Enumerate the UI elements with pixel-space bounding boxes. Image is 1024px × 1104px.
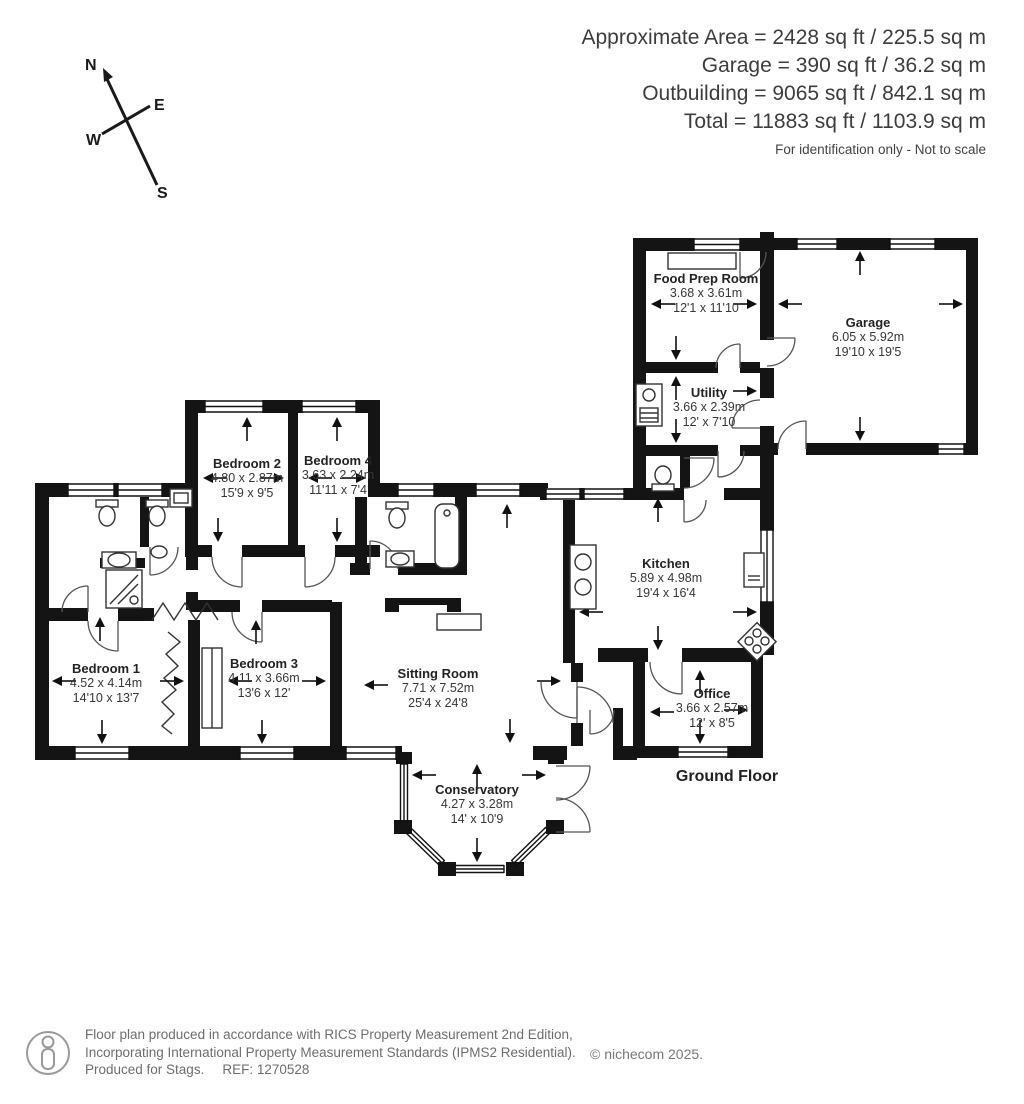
room-label-garage: Garage 6.05 x 5.92m 19'10 x 19'5 <box>832 315 904 360</box>
floor-plan-page: Approximate Area = 2428 sq ft / 225.5 sq… <box>0 0 1024 1104</box>
footer-line-2: Incorporating International Property Mea… <box>85 1044 576 1062</box>
footer-line-3: Produced for Stags.REF: 1270528 <box>85 1061 576 1079</box>
room-label-sitting-room: Sitting Room 7.71 x 7.52m 25'4 x 24'8 <box>398 666 479 711</box>
person-icon <box>26 1027 72 1077</box>
room-label-bedroom-4: Bedroom 4 3.63 x 2.24m 11'11 x 7'4 <box>302 453 374 498</box>
room-label-bedroom-2: Bedroom 2 4.80 x 2.87m 15'9 x 9'5 <box>211 456 283 501</box>
hearth <box>437 614 481 630</box>
kitchen-sink-icon <box>570 545 596 609</box>
footer-text: Floor plan produced in accordance with R… <box>85 1026 576 1079</box>
room-label-food-prep: Food Prep Room 3.68 x 3.61m 12'1 x 11'10 <box>654 271 759 316</box>
room-label-bedroom-3: Bedroom 3 4.11 x 3.66m 13'6 x 12' <box>228 656 299 701</box>
floor-label: Ground Floor <box>676 768 778 786</box>
room-label-utility: Utility 3.66 x 2.39m 12' x 7'10 <box>673 385 745 430</box>
corner-sink-icon <box>151 546 167 558</box>
toilet-icon <box>652 466 674 491</box>
washer-icon <box>636 384 662 426</box>
sink-icon <box>386 551 414 567</box>
wardrobe-icon <box>202 648 222 728</box>
footer-line-1: Floor plan produced in accordance with R… <box>85 1026 576 1044</box>
room-label-kitchen: Kitchen 5.89 x 4.98m 19'4 x 16'4 <box>630 556 702 601</box>
toilet-icon <box>386 502 408 528</box>
room-label-office: Office 3.66 x 2.57m 12' x 8'5 <box>676 686 748 731</box>
counter-icon <box>668 253 736 269</box>
footer: Floor plan produced in accordance with R… <box>26 1026 576 1079</box>
shower-icon <box>106 570 142 608</box>
room-label-bedroom-1: Bedroom 1 4.52 x 4.14m 14'10 x 13'7 <box>70 661 142 706</box>
room-label-conservatory: Conservatory 4.27 x 3.28m 14' x 10'9 <box>435 782 519 827</box>
footer-ref: REF: 1270528 <box>222 1062 309 1077</box>
copyright: © nichecom 2025. <box>590 1046 703 1062</box>
bathtub-icon <box>435 504 459 568</box>
floor-plan-drawing <box>0 0 1024 1104</box>
toilet-icon <box>96 500 118 526</box>
fridge-icon <box>744 553 764 587</box>
boiler-icon <box>170 489 192 507</box>
sink-icon <box>102 552 136 568</box>
toilet-icon <box>146 500 168 526</box>
chimney-breast <box>385 598 461 612</box>
